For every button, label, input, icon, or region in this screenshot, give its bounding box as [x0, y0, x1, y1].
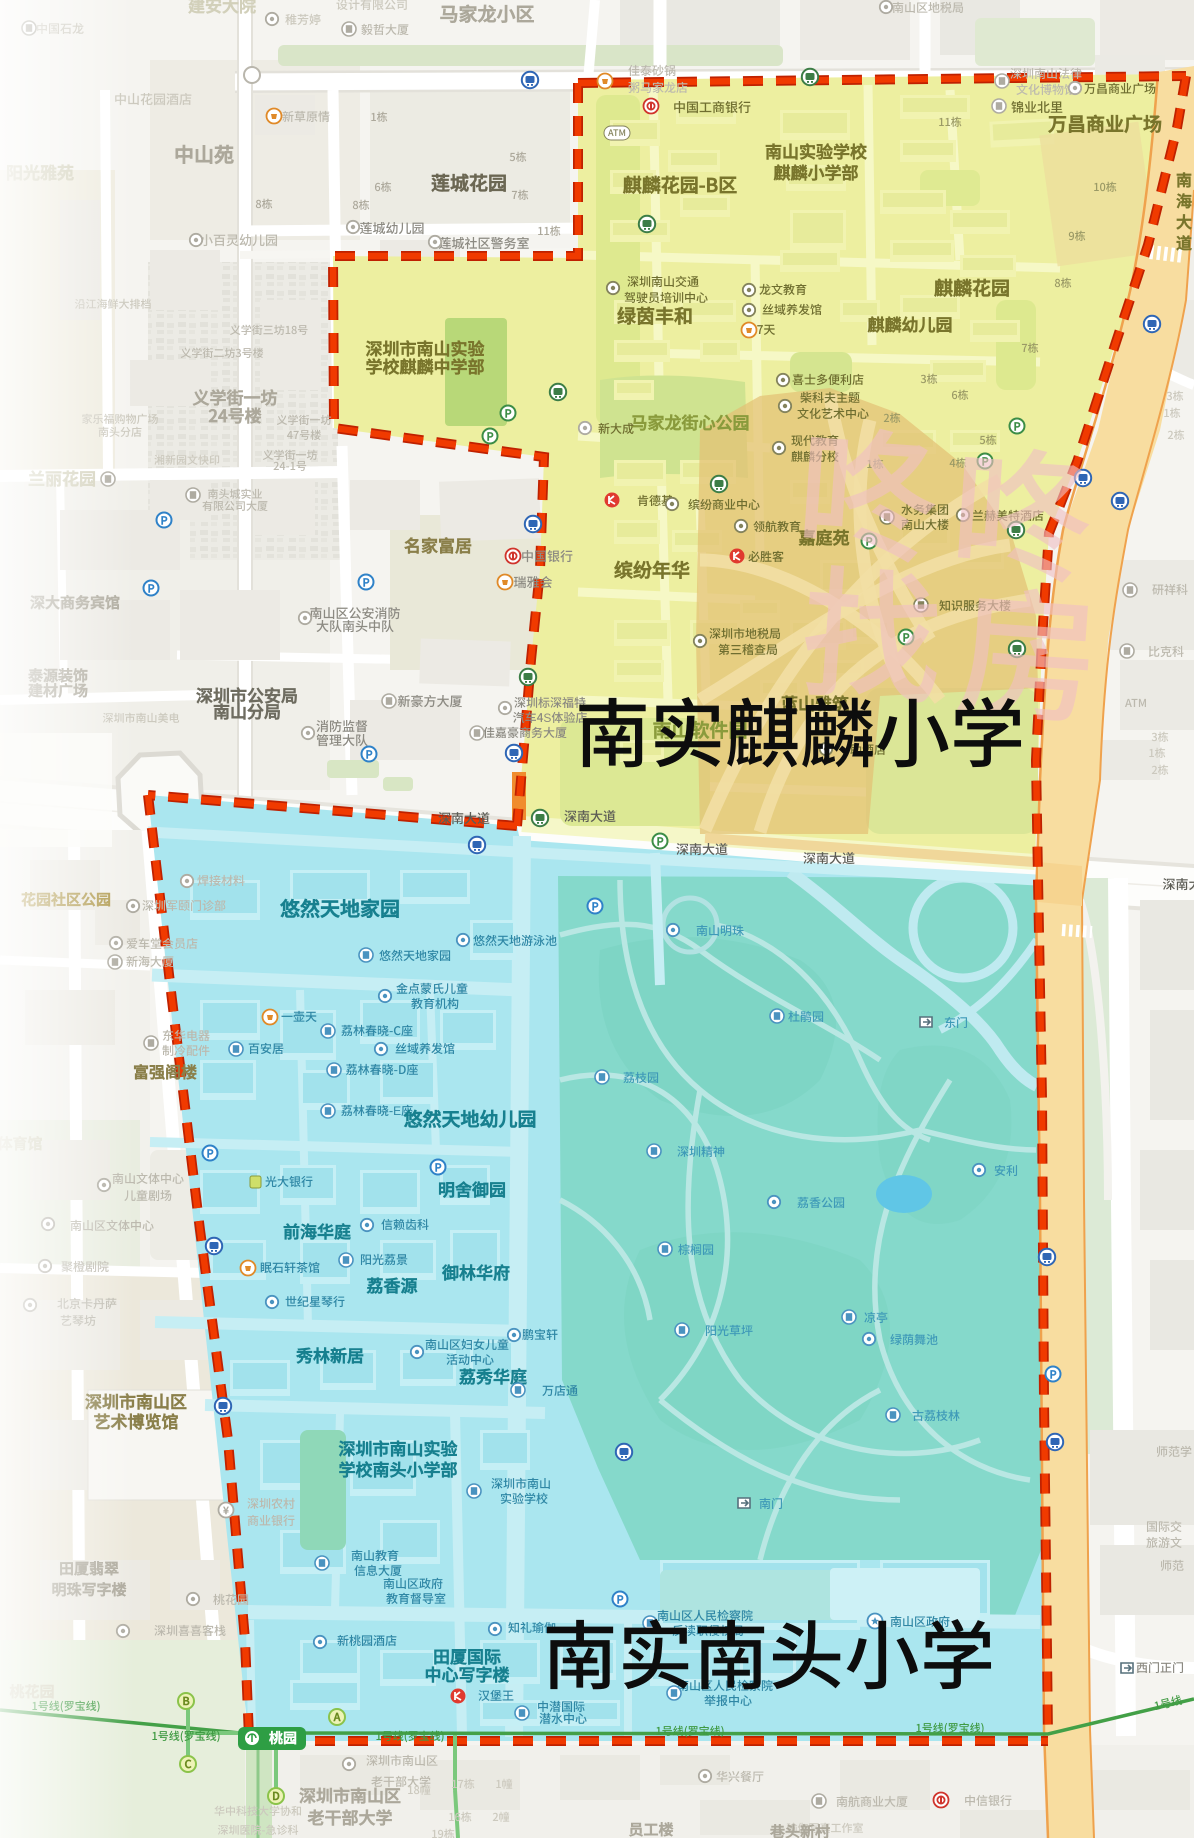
- svg-text:7栋: 7栋: [511, 187, 528, 203]
- svg-text:中信银行: 中信银行: [964, 1792, 1012, 1809]
- svg-text:16栋: 16栋: [448, 1809, 472, 1825]
- svg-text:18幢: 18幢: [407, 1782, 431, 1798]
- svg-text:百安居: 百安居: [248, 1040, 284, 1057]
- svg-text:9栋: 9栋: [1068, 228, 1085, 244]
- svg-text:佳嘉豪商务大厦: 佳嘉豪商务大厦: [483, 724, 567, 741]
- svg-text:2栋: 2栋: [1167, 427, 1184, 443]
- svg-text:万昌商业广场: 万昌商业广场: [1084, 80, 1156, 97]
- svg-text:中国工商银行: 中国工商银行: [673, 97, 751, 116]
- svg-text:马家龙小区: 马家龙小区: [439, 0, 534, 27]
- svg-text:粥马家龙店: 粥马家龙店: [628, 79, 688, 96]
- svg-text:研祥科: 研祥科: [1152, 581, 1188, 598]
- svg-text:深圳南山交通: 深圳南山交通: [627, 273, 699, 290]
- svg-text:眠石轩茶馆: 眠石轩茶馆: [260, 1259, 320, 1276]
- svg-text:华中科技大学协和: 华中科技大学协和: [214, 1803, 302, 1819]
- svg-text:第三稽查局: 第三稽查局: [718, 641, 778, 658]
- svg-text:文化博物馆: 文化博物馆: [1016, 81, 1076, 98]
- svg-text:3栋: 3栋: [920, 371, 937, 387]
- svg-text:桃花园: 桃花园: [213, 1591, 249, 1608]
- svg-text:世纪星琴行: 世纪星琴行: [285, 1293, 345, 1310]
- svg-text:巷头新村: 巷头新村: [769, 1821, 830, 1838]
- svg-text:3栋: 3栋: [1166, 388, 1183, 404]
- svg-text:学校麒麟中学部: 学校麒麟中学部: [366, 353, 485, 378]
- svg-text:佳泰砂锅: 佳泰砂锅: [628, 62, 676, 79]
- svg-text:荔枝园: 荔枝园: [623, 1069, 659, 1086]
- svg-text:南山明珠: 南山明珠: [696, 922, 744, 939]
- svg-text:D: D: [272, 1788, 280, 1804]
- svg-text:悠然天地家园: 悠然天地家园: [379, 947, 451, 964]
- svg-text:小百灵幼儿园: 小百灵幼儿园: [200, 230, 278, 249]
- svg-text:C: C: [184, 1756, 192, 1772]
- svg-text:商业银行: 商业银行: [247, 1512, 295, 1529]
- svg-text:缤纷商业中心: 缤纷商业中心: [688, 496, 760, 513]
- svg-text:1号线(罗宝线): 1号线(罗宝线): [915, 1720, 984, 1736]
- svg-text:瑞雅会: 瑞雅会: [513, 572, 552, 591]
- svg-text:悠然天地幼儿园: 悠然天地幼儿园: [402, 1105, 536, 1132]
- svg-text:深南大: 深南大: [1162, 874, 1194, 893]
- svg-text:深南大道: 深南大道: [564, 806, 616, 825]
- svg-text:莲城幼儿园: 莲城幼儿园: [359, 218, 424, 237]
- svg-text:8栋: 8栋: [255, 196, 272, 212]
- svg-text:深圳医院-急诊科: 深圳医院-急诊科: [218, 1822, 299, 1838]
- svg-text:光大银行: 光大银行: [265, 1173, 313, 1190]
- svg-text:设计有限公司: 设计有限公司: [336, 0, 408, 13]
- svg-text:桃园: 桃园: [269, 1728, 297, 1748]
- svg-text:绿荫舞池: 绿荫舞池: [890, 1331, 938, 1348]
- svg-text:8栋: 8栋: [1054, 275, 1071, 291]
- svg-text:员工楼: 员工楼: [628, 1819, 674, 1838]
- svg-text:荔香源: 荔香源: [366, 1272, 419, 1297]
- svg-text:明舍御园: 明舍御园: [438, 1176, 506, 1201]
- svg-text:深南大道: 深南大道: [803, 848, 855, 867]
- svg-text:ATM: ATM: [1125, 695, 1147, 711]
- svg-text:学校南头小学部: 学校南头小学部: [339, 1456, 458, 1481]
- svg-text:中心写字楼: 中心写字楼: [425, 1661, 511, 1686]
- svg-text:师范: 师范: [1160, 1557, 1184, 1574]
- svg-text:荔林春晓-E座: 荔林春晓-E座: [341, 1102, 413, 1119]
- svg-text:47号楼: 47号楼: [287, 427, 322, 443]
- svg-text:深圳军颐门诊部: 深圳军颐门诊部: [142, 897, 226, 914]
- svg-text:毅哲大厦: 毅哲大厦: [361, 21, 409, 38]
- svg-text:爱车堂会员店: 爱车堂会员店: [126, 935, 198, 952]
- svg-text:1号线(罗宝线): 1号线(罗宝线): [375, 1728, 444, 1744]
- svg-text:B: B: [182, 1693, 190, 1709]
- svg-text:阳光草坪: 阳光草坪: [705, 1322, 753, 1339]
- svg-text:万昌商业广场: 万昌商业广场: [1047, 110, 1162, 137]
- svg-text:10栋: 10栋: [1093, 179, 1117, 195]
- svg-text:麒麟小学部: 麒麟小学部: [774, 159, 859, 184]
- svg-text:中山苑: 中山苑: [174, 139, 234, 168]
- svg-text:1号线(罗宝线): 1号线(罗宝线): [151, 1728, 220, 1744]
- svg-text:深圳市地税局: 深圳市地税局: [709, 625, 781, 642]
- svg-text:1号线(罗宝线): 1号线(罗宝线): [655, 1723, 724, 1739]
- svg-text:深圳精神: 深圳精神: [677, 1143, 725, 1160]
- svg-text:南实麒麟小学: 南实麒麟小学: [575, 674, 1025, 783]
- svg-text:新大成: 新大成: [598, 420, 634, 437]
- svg-text:1栋: 1栋: [370, 109, 387, 125]
- svg-text:19栋: 19栋: [431, 1826, 455, 1838]
- svg-text:麒麟花园-B区: 麒麟花园-B区: [623, 171, 737, 198]
- svg-text:华兴餐厅: 华兴餐厅: [716, 1768, 764, 1785]
- svg-text:鹏宝轩: 鹏宝轩: [522, 1326, 558, 1343]
- svg-text:湘新园文快印: 湘新园文快印: [154, 452, 220, 468]
- svg-text:阳光荔景: 阳光荔景: [360, 1251, 408, 1268]
- svg-text:荔林春晓-C座: 荔林春晓-C座: [341, 1022, 413, 1039]
- svg-text:南实南头小学: 南实南头小学: [542, 1596, 995, 1705]
- svg-text:万店通: 万店通: [542, 1382, 578, 1399]
- svg-text:A: A: [333, 1709, 342, 1725]
- svg-text:实验学校: 实验学校: [500, 1490, 548, 1507]
- svg-text:道: 道: [1176, 230, 1192, 254]
- svg-text:新豪方大厦: 新豪方大厦: [397, 691, 462, 710]
- svg-text:义学街二坊3号楼: 义学街二坊3号楼: [180, 345, 263, 361]
- svg-text:24-1号: 24-1号: [273, 458, 307, 474]
- svg-text:丝域养发馆: 丝域养发馆: [395, 1040, 455, 1057]
- svg-text:莲城社区警务室: 莲城社区警务室: [438, 233, 529, 252]
- svg-text:御林华府: 御林华府: [441, 1259, 510, 1284]
- svg-text:信赖齿科: 信赖齿科: [381, 1216, 429, 1233]
- svg-text:潜水中心: 潜水中心: [539, 1710, 587, 1727]
- svg-text:深圳农村: 深圳农村: [247, 1495, 295, 1512]
- svg-text:6栋: 6栋: [374, 179, 391, 195]
- svg-text:中国银行: 中国银行: [521, 546, 573, 565]
- svg-text:国际交: 国际交: [1146, 1518, 1182, 1535]
- svg-text:11栋: 11栋: [938, 114, 962, 130]
- svg-text:富强阁楼: 富强阁楼: [133, 1059, 198, 1083]
- svg-text:龙文教育: 龙文教育: [759, 281, 807, 298]
- svg-text:马家龙街心公园: 马家龙街心公园: [631, 409, 750, 434]
- svg-text:荔林春晓-D座: 荔林春晓-D座: [346, 1061, 419, 1078]
- svg-text:2栋: 2栋: [1151, 762, 1168, 778]
- svg-text:7天: 7天: [757, 321, 776, 338]
- svg-text:义学街一坊: 义学街一坊: [277, 412, 332, 428]
- svg-text:汉堡王: 汉堡王: [478, 1687, 514, 1704]
- svg-text:必胜客: 必胜客: [748, 548, 784, 565]
- svg-text:安利: 安利: [994, 1162, 1018, 1179]
- svg-text:5栋: 5栋: [509, 149, 526, 165]
- svg-text:教育机构: 教育机构: [411, 995, 459, 1012]
- svg-text:南航商业大厦: 南航商业大厦: [836, 1793, 908, 1810]
- svg-text:17栋: 17栋: [451, 1776, 475, 1792]
- svg-text:大队南头中队: 大队南头中队: [316, 616, 394, 635]
- svg-text:旅游文: 旅游文: [1146, 1534, 1182, 1551]
- svg-text:南山分局: 南山分局: [213, 698, 281, 723]
- svg-text:义学街三坊18号: 义学街三坊18号: [230, 322, 309, 338]
- svg-text:8栋: 8栋: [352, 197, 369, 213]
- svg-text:深南大道: 深南大道: [438, 808, 490, 827]
- svg-text:新草原情: 新草原情: [282, 108, 330, 125]
- svg-text:一壶天: 一壶天: [281, 1008, 317, 1025]
- svg-text:1幢: 1幢: [495, 1776, 512, 1792]
- svg-text:1栋: 1栋: [1163, 405, 1180, 421]
- svg-text:2幢: 2幢: [492, 1809, 509, 1825]
- svg-text:7栋: 7栋: [1021, 340, 1038, 356]
- svg-text:南山区地税局: 南山区地税局: [892, 0, 964, 16]
- svg-text:莲城花园: 莲城花园: [431, 169, 507, 196]
- svg-text:名家富居: 名家富居: [404, 532, 472, 557]
- svg-text:秀林新居: 秀林新居: [295, 1342, 364, 1367]
- svg-text:有限公司大厦: 有限公司大厦: [202, 498, 268, 514]
- svg-text:管理大队: 管理大队: [316, 730, 368, 749]
- svg-text:棕榈园: 棕榈园: [678, 1241, 714, 1258]
- svg-text:新桃园酒店: 新桃园酒店: [337, 1632, 397, 1649]
- svg-text:古荔枝林: 古荔枝林: [912, 1407, 960, 1424]
- svg-text:制冷配件: 制冷配件: [162, 1042, 210, 1059]
- svg-text:荔香公园: 荔香公园: [797, 1194, 845, 1211]
- svg-text:深南大道: 深南大道: [676, 839, 728, 858]
- svg-text:稚芳婷: 稚芳婷: [285, 11, 321, 28]
- svg-text:教育督导室: 教育督导室: [386, 1590, 446, 1607]
- svg-text:绿茵丰和: 绿茵丰和: [617, 302, 693, 329]
- svg-text:前海华庭: 前海华庭: [283, 1218, 352, 1243]
- svg-text:ATM: ATM: [608, 126, 626, 139]
- svg-text:师范学: 师范学: [1156, 1443, 1192, 1460]
- svg-text:24号楼: 24号楼: [208, 402, 262, 427]
- svg-text:深圳南山法律: 深圳南山法律: [1010, 65, 1082, 82]
- svg-text:南门: 南门: [759, 1495, 783, 1512]
- svg-text:深圳市南山区: 深圳市南山区: [366, 1752, 438, 1769]
- svg-text:西门正门: 西门正门: [1136, 1659, 1184, 1676]
- svg-text:杜鹃园: 杜鹃园: [788, 1008, 824, 1025]
- svg-text:悠然天地家园: 悠然天地家园: [279, 893, 400, 922]
- svg-text:凉亭: 凉亭: [864, 1309, 888, 1326]
- svg-text:老干部大学: 老干部大学: [307, 1804, 393, 1829]
- svg-text:深圳喜喜客栈: 深圳喜喜客栈: [154, 1622, 226, 1639]
- svg-text:3栋: 3栋: [1151, 729, 1168, 745]
- svg-text:悠然天地游泳池: 悠然天地游泳池: [473, 932, 557, 949]
- svg-text:缤纷年华: 缤纷年华: [614, 556, 690, 583]
- svg-text:建安大院: 建安大院: [187, 0, 256, 17]
- svg-text:比克科: 比克科: [1148, 643, 1184, 660]
- svg-text:11栋: 11栋: [537, 223, 561, 239]
- svg-text:1栋: 1栋: [1148, 745, 1165, 761]
- svg-text:丝域养发馆: 丝域养发馆: [762, 301, 822, 318]
- svg-text:麒麟花园: 麒麟花园: [934, 274, 1010, 301]
- svg-text:东门: 东门: [944, 1014, 968, 1031]
- svg-text:麒麟幼儿园: 麒麟幼儿园: [868, 311, 953, 336]
- svg-text:焊接材料: 焊接材料: [197, 872, 245, 889]
